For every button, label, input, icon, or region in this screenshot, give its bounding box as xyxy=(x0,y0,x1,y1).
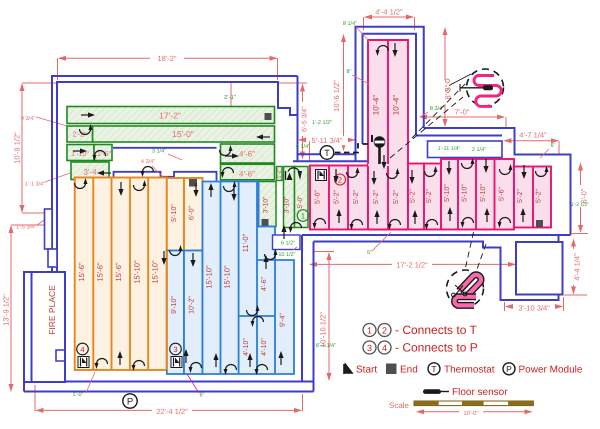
svg-text:5'-2": 5'-2" xyxy=(334,190,341,204)
svg-text:1: 1 xyxy=(301,212,305,221)
svg-text:3: 3 xyxy=(173,345,177,354)
svg-text:4'-10": 4'-10" xyxy=(261,338,268,356)
svg-text:1'-11 1/4": 1'-11 1/4" xyxy=(438,146,461,152)
svg-text:1'-2 1/2": 1'-2 1/2" xyxy=(312,120,332,126)
svg-text:2'-1": 2'-1" xyxy=(224,94,236,101)
svg-text:3'-10": 3'-10" xyxy=(263,196,270,213)
svg-text:15'-6": 15'-6" xyxy=(114,262,123,281)
svg-text:Floor sensor: Floor sensor xyxy=(452,387,508,398)
svg-text:5'-6": 5'-6" xyxy=(499,187,506,201)
svg-text:9'-10": 9'-10" xyxy=(171,296,178,314)
svg-text:End: End xyxy=(400,365,418,376)
svg-text:Thermostat: Thermostat xyxy=(444,365,495,376)
svg-text:3 1/4": 3 1/4" xyxy=(152,149,166,155)
svg-text:4'-4 1/2": 4'-4 1/2" xyxy=(375,8,403,17)
svg-text:18'-2": 18'-2" xyxy=(157,54,176,63)
svg-text:9'-4": 9'-4" xyxy=(280,313,287,327)
svg-text:4'-10": 4'-10" xyxy=(243,338,250,356)
svg-text:8": 8" xyxy=(346,69,351,75)
svg-text:4'-6": 4'-6" xyxy=(239,150,255,159)
svg-text:- Connects to T: - Connects to T xyxy=(395,323,477,337)
svg-text:4'-6": 4'-6" xyxy=(239,170,255,179)
svg-text:Power Module: Power Module xyxy=(519,365,583,376)
svg-text:2: 2 xyxy=(338,176,342,185)
svg-text:4'-4 1/4": 4'-4 1/4" xyxy=(573,253,582,281)
svg-text:3'-10": 3'-10" xyxy=(284,196,291,213)
svg-text:5'-10": 5'-10" xyxy=(171,204,178,222)
svg-text:17'-2 1/2": 17'-2 1/2" xyxy=(396,261,428,270)
svg-text:13'-9 1/2": 13'-9 1/2" xyxy=(2,294,11,326)
svg-text:T: T xyxy=(431,364,436,374)
svg-text:5'-0": 5'-0" xyxy=(297,195,304,209)
svg-text:1'-0": 1'-0" xyxy=(73,392,84,398)
svg-text:6": 6" xyxy=(199,393,204,399)
svg-text:6'-1 1/4": 6'-1 1/4" xyxy=(316,343,336,349)
svg-text:15'-10": 15'-10" xyxy=(132,260,141,284)
svg-text:10'-4": 10'-4" xyxy=(372,95,381,116)
svg-text:6 1/2": 6 1/2" xyxy=(281,241,295,247)
svg-text:8 1/4": 8 1/4" xyxy=(343,21,357,27)
svg-text:6 1/4": 6 1/4" xyxy=(296,144,310,150)
svg-text:4 3/4": 4 3/4" xyxy=(141,159,155,165)
svg-text:P: P xyxy=(506,364,512,374)
svg-text:22'-4 1/2": 22'-4 1/2" xyxy=(156,407,188,416)
svg-text:15'-10": 15'-10" xyxy=(223,265,232,289)
svg-text:5'-2": 5'-2" xyxy=(373,190,380,204)
svg-text:5'-11 3/4": 5'-11 3/4" xyxy=(311,136,342,145)
svg-text:6'-5 3/4": 6'-5 3/4" xyxy=(301,106,309,132)
svg-text:5'-10": 5'-10" xyxy=(480,184,487,202)
svg-text:1'-5 3/4": 1'-5 3/4" xyxy=(16,225,36,231)
svg-text:5'-2": 5'-2" xyxy=(410,189,417,203)
svg-text:5'-2": 5'-2" xyxy=(393,190,400,204)
svg-text:3: 3 xyxy=(367,343,372,353)
svg-text:17'-2": 17'-2" xyxy=(159,111,181,121)
svg-text:15'-6": 15'-6" xyxy=(96,262,105,281)
svg-text:T: T xyxy=(324,148,330,158)
svg-text:6'-0": 6'-0" xyxy=(189,206,196,220)
svg-text:5'-0": 5'-0" xyxy=(315,190,322,204)
svg-text:11'-0": 11'-0" xyxy=(241,233,250,252)
svg-text:4: 4 xyxy=(382,343,387,353)
svg-text:9 3/4": 9 3/4" xyxy=(21,116,35,122)
svg-text:15'-10": 15'-10" xyxy=(151,260,160,284)
svg-text:10'-0": 10'-0" xyxy=(463,410,478,417)
svg-text:3'-10 3/4": 3'-10 3/4" xyxy=(518,304,550,313)
svg-text:8'-5": 8'-5" xyxy=(444,84,453,99)
svg-text:2: 2 xyxy=(382,326,387,336)
svg-text:10'-4": 10'-4" xyxy=(392,95,401,116)
svg-text:5": 5" xyxy=(367,250,372,256)
svg-text:1: 1 xyxy=(367,326,372,336)
svg-text:4: 4 xyxy=(80,345,84,354)
svg-text:7'-0": 7'-0" xyxy=(455,108,470,117)
svg-text:4'-6": 4'-6" xyxy=(261,277,268,291)
svg-text:10'-6 1/2": 10'-6 1/2" xyxy=(332,80,341,112)
svg-text:10'-2": 10'-2" xyxy=(189,296,196,314)
svg-text:15'-6": 15'-6" xyxy=(77,262,86,281)
svg-text:5'-2": 5'-2" xyxy=(353,190,360,204)
svg-text:6": 6" xyxy=(550,143,555,149)
svg-text:2 1/4": 2 1/4" xyxy=(472,147,486,153)
svg-text:5'-2": 5'-2" xyxy=(536,189,543,203)
svg-text:P: P xyxy=(127,397,133,408)
svg-text:5'-10": 5'-10" xyxy=(462,184,469,202)
svg-text:FIRE PLACE: FIRE PLACE xyxy=(47,285,57,335)
svg-text:5'-2": 5'-2" xyxy=(517,189,524,203)
svg-text:15'-0": 15'-0" xyxy=(172,129,194,139)
svg-text:3'-4: 3'-4 xyxy=(83,168,97,177)
svg-text:15'-10": 15'-10" xyxy=(205,265,214,289)
svg-text:1'-2": 1'-2" xyxy=(277,168,283,178)
svg-text:1'-2 1/2": 1'-2 1/2" xyxy=(571,202,590,208)
svg-text:4'-7 1/4": 4'-7 1/4" xyxy=(519,131,547,140)
svg-text:10'-9 1/2": 10'-9 1/2" xyxy=(13,132,22,164)
svg-text:5'-2": 5'-2" xyxy=(426,189,433,203)
svg-text:- Connects to P: - Connects to P xyxy=(395,341,478,355)
svg-text:1'-1 3/4": 1'-1 3/4" xyxy=(25,182,45,188)
svg-text:Start: Start xyxy=(356,365,377,376)
svg-text:10 1/2": 10 1/2" xyxy=(278,252,295,258)
svg-text:5'-10": 5'-10" xyxy=(444,184,451,202)
svg-text:Scale: Scale xyxy=(389,401,410,410)
